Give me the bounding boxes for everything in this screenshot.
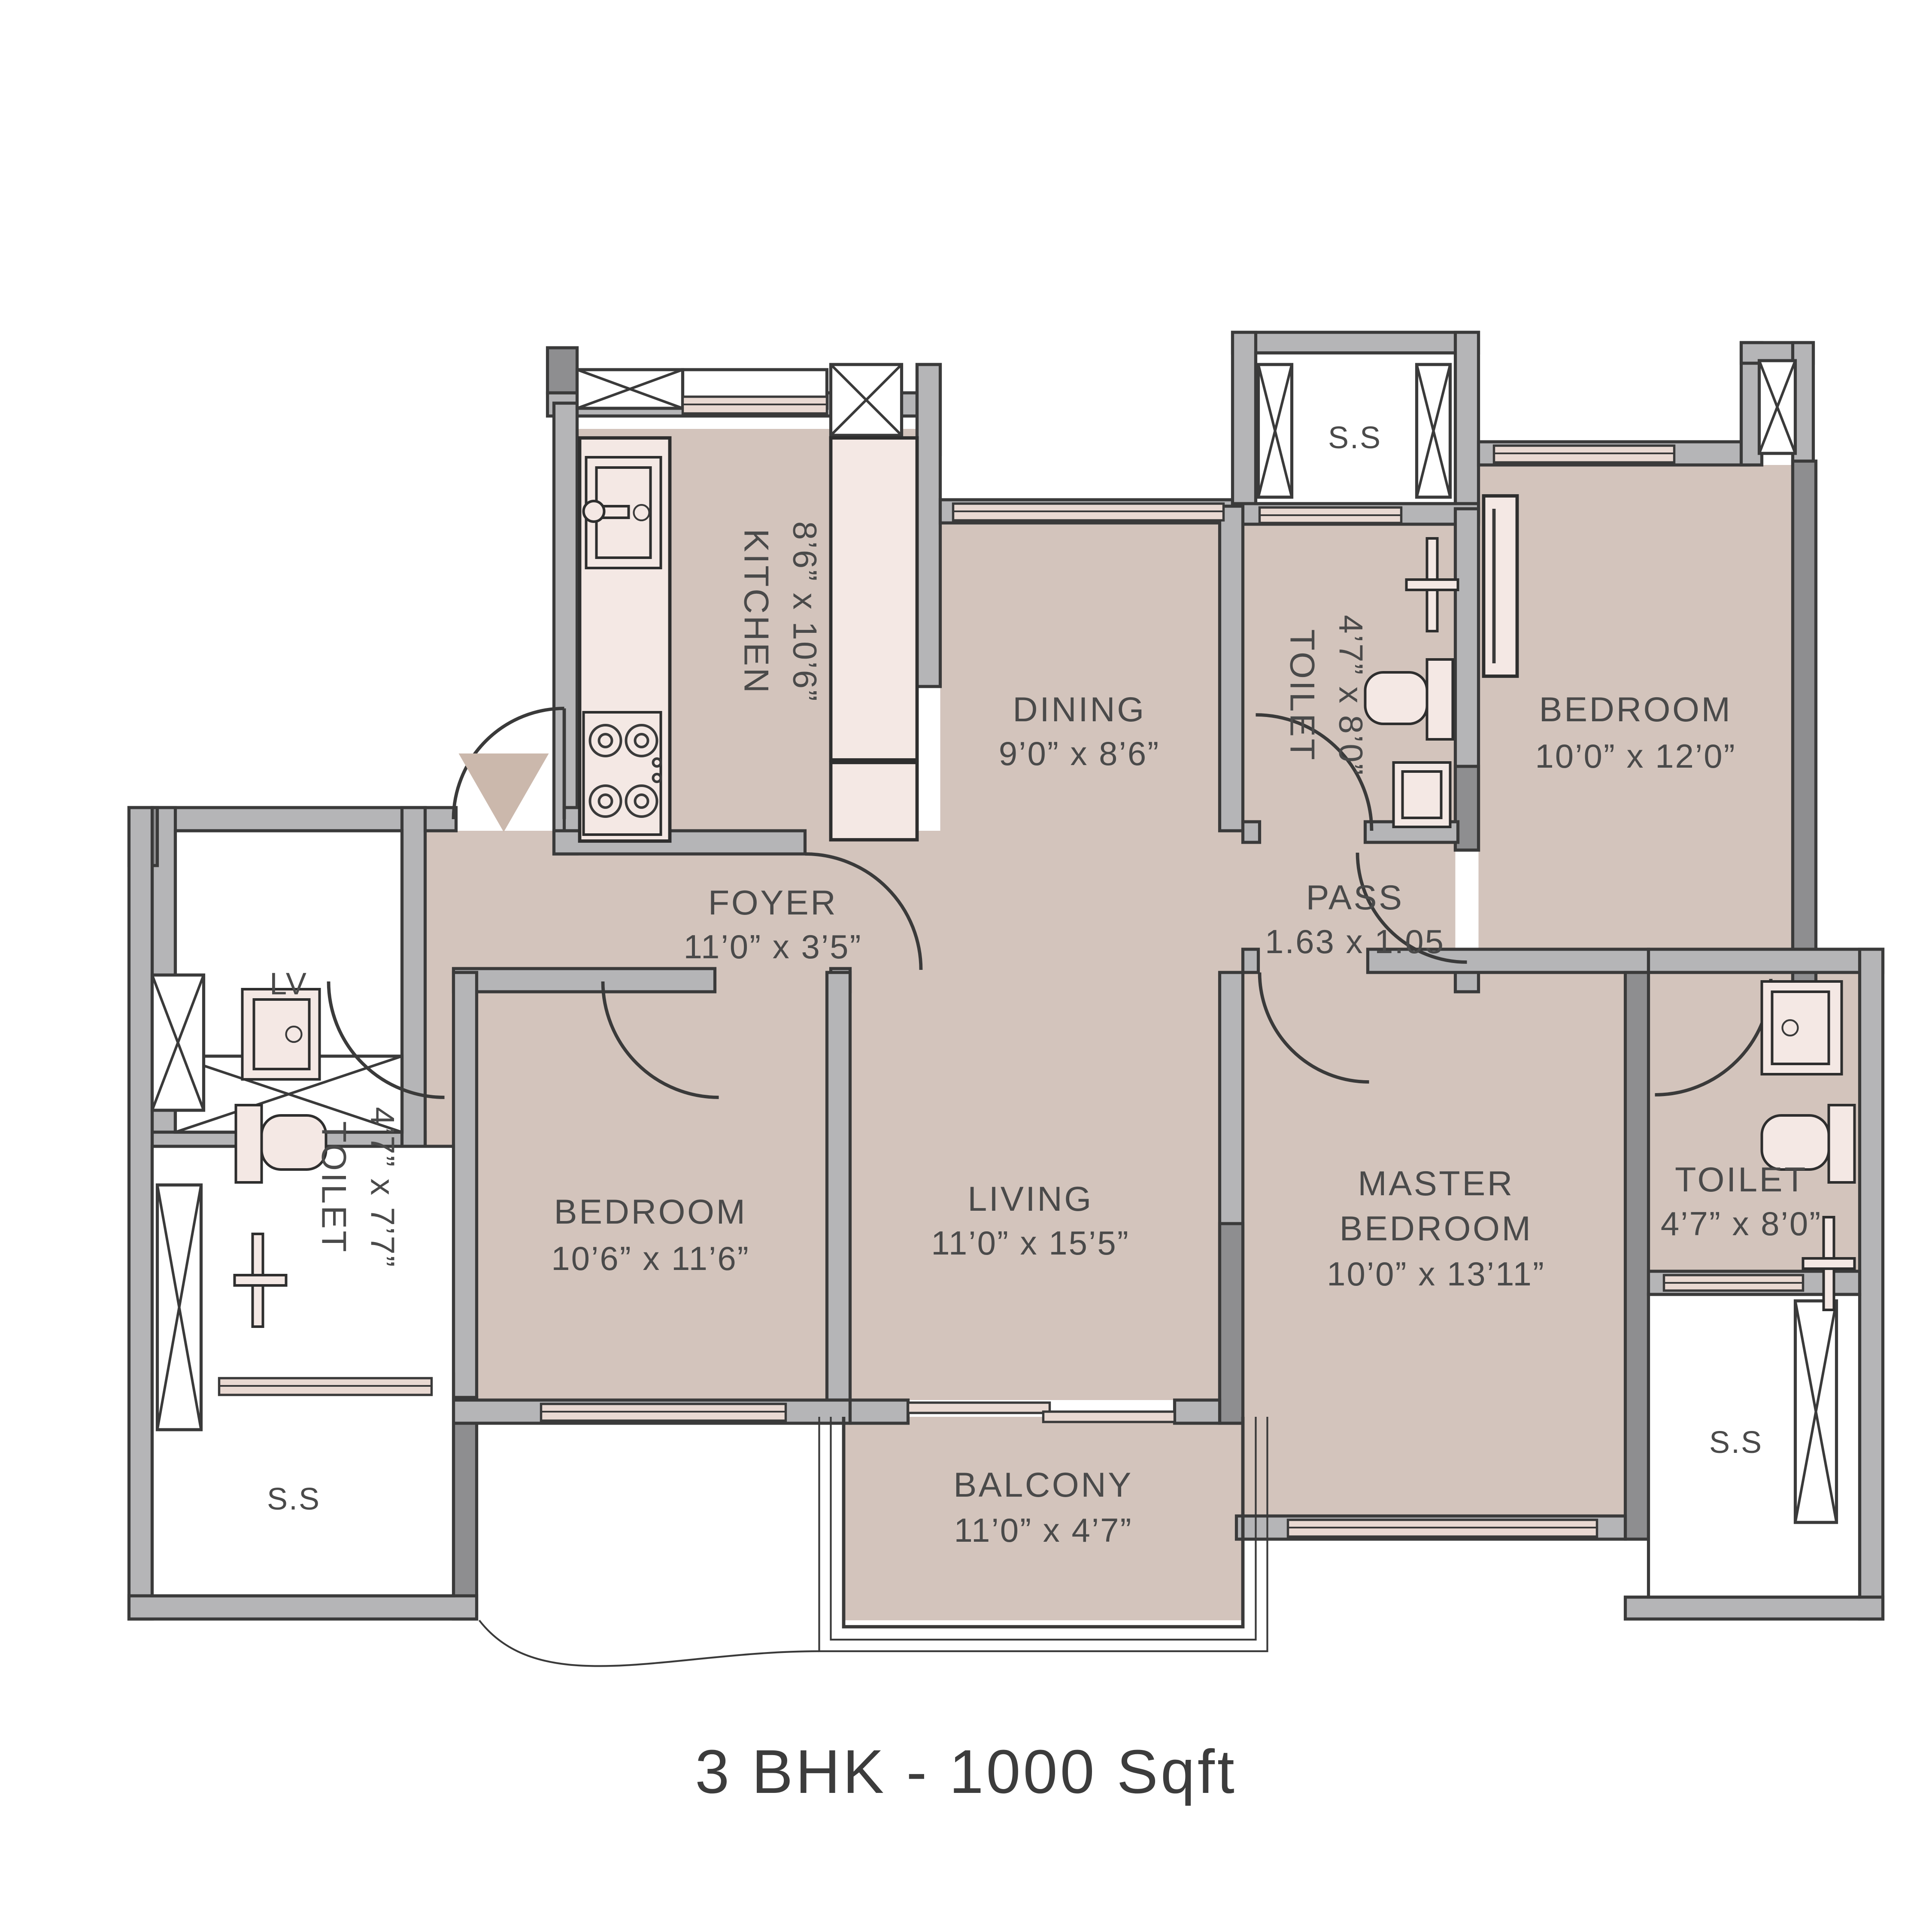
washbasin-inner <box>1403 772 1441 818</box>
entry-arrow-icon <box>459 753 549 832</box>
wall-segment <box>1243 822 1260 842</box>
label-master-1: MASTER <box>1358 1164 1514 1203</box>
floor-plan: KITCHEN 8’6” x 10’6” DINING 9’0” x 8’6” … <box>0 0 1932 1932</box>
wc-icon <box>1365 672 1427 724</box>
label-dining-dims: 9’0” x 8’6” <box>999 735 1160 772</box>
wall-segment <box>1243 949 1259 972</box>
label-balcony: BALCONY <box>953 1466 1133 1504</box>
wc-tank <box>1829 1105 1855 1182</box>
wall-segment <box>917 365 940 687</box>
kitchen-counter <box>831 762 917 840</box>
wall-segment <box>454 969 715 992</box>
kitchen-sink-icon <box>584 457 661 568</box>
wall-segment <box>1175 1400 1220 1423</box>
label-living: LIVING <box>968 1180 1093 1218</box>
label-toilet-right: TOILET <box>1675 1160 1808 1199</box>
label-foyer-dims: 11’0” x 3’5” <box>683 928 862 966</box>
wardrobe-icon <box>1484 496 1517 676</box>
label-toilet-left: TOILET <box>315 1121 353 1254</box>
label-pass-dims: 1.63 x 1.05 <box>1265 923 1445 960</box>
label-dining: DINING <box>1013 690 1146 729</box>
label-master-dims: 10’0” x 13’11” <box>1327 1255 1545 1293</box>
wall-segment <box>1456 332 1479 522</box>
label-ss-left: S.S <box>267 1482 321 1516</box>
label-balcony-dims: 11’0” x 4’7” <box>954 1511 1132 1549</box>
label-bedroom-left-dims: 10’6” x 11’6” <box>551 1239 749 1277</box>
drip-line <box>479 1620 819 1666</box>
label-toilet-right-dims: 4’7” x 8’0” <box>1661 1205 1822 1242</box>
wall-segment <box>425 808 456 831</box>
wall-segment <box>454 972 477 1397</box>
wall-segment <box>1233 332 1479 353</box>
wall-segment <box>152 808 425 831</box>
wall-column <box>1626 972 1649 1539</box>
wall-segment <box>1626 1597 1883 1619</box>
label-ss-right: S.S <box>1709 1425 1763 1460</box>
wall-segment <box>1860 949 1883 1619</box>
label-ss-top: S.S <box>1328 421 1382 455</box>
room-dining <box>940 515 1220 837</box>
label-master-2: BEDROOM <box>1339 1209 1532 1248</box>
kitchen-counter <box>831 438 917 760</box>
page-title: 3 BHK - 1000 Sqft <box>695 1737 1237 1806</box>
wc-tank <box>1427 659 1453 739</box>
label-bedroom-left: BEDROOM <box>554 1193 747 1231</box>
wall-segment <box>1649 949 1883 972</box>
label-kitchen-dims: 8’6” x 10’6” <box>786 521 824 702</box>
label-toilet-top-dims: 4’7” x 8’0” <box>1332 615 1370 776</box>
sliding-door <box>1043 1412 1175 1422</box>
label-toilet-top: TOILET <box>1283 629 1322 762</box>
wc-tank <box>236 1105 262 1182</box>
stove-icon <box>584 712 661 835</box>
wall-segment <box>129 1596 477 1619</box>
room-bedroom-left <box>477 972 827 1400</box>
washbasin-inner <box>1772 992 1829 1064</box>
sliding-door <box>908 1403 1050 1413</box>
wall-segment <box>1220 506 1243 831</box>
shower-icon <box>1803 1258 1855 1269</box>
wall-segment <box>850 1400 908 1423</box>
wall-segment <box>827 972 850 1400</box>
label-bedroom-top-dims: 10’0” x 12’0” <box>1535 737 1736 775</box>
label-lift: LV <box>270 967 308 1001</box>
label-bedroom-top: BEDROOM <box>1539 690 1732 729</box>
wall-column <box>548 348 577 393</box>
wall-column <box>1220 1224 1243 1423</box>
shower-icon <box>235 1275 286 1285</box>
shower-icon <box>1407 580 1458 590</box>
wall-column <box>1793 461 1816 992</box>
label-toilet-left-dims: 4’7” x 7’7” <box>364 1107 401 1268</box>
wall-column <box>454 1397 477 1619</box>
sink-faucet-base <box>584 501 604 522</box>
label-pass: PASS <box>1306 878 1404 917</box>
wall-segment <box>1233 332 1256 522</box>
wall-segment <box>402 808 425 1155</box>
label-kitchen: KITCHEN <box>737 529 776 695</box>
label-living-dims: 11’0” x 15’5” <box>931 1224 1129 1262</box>
label-foyer: FOYER <box>708 884 838 922</box>
wall-segment <box>129 808 152 1619</box>
